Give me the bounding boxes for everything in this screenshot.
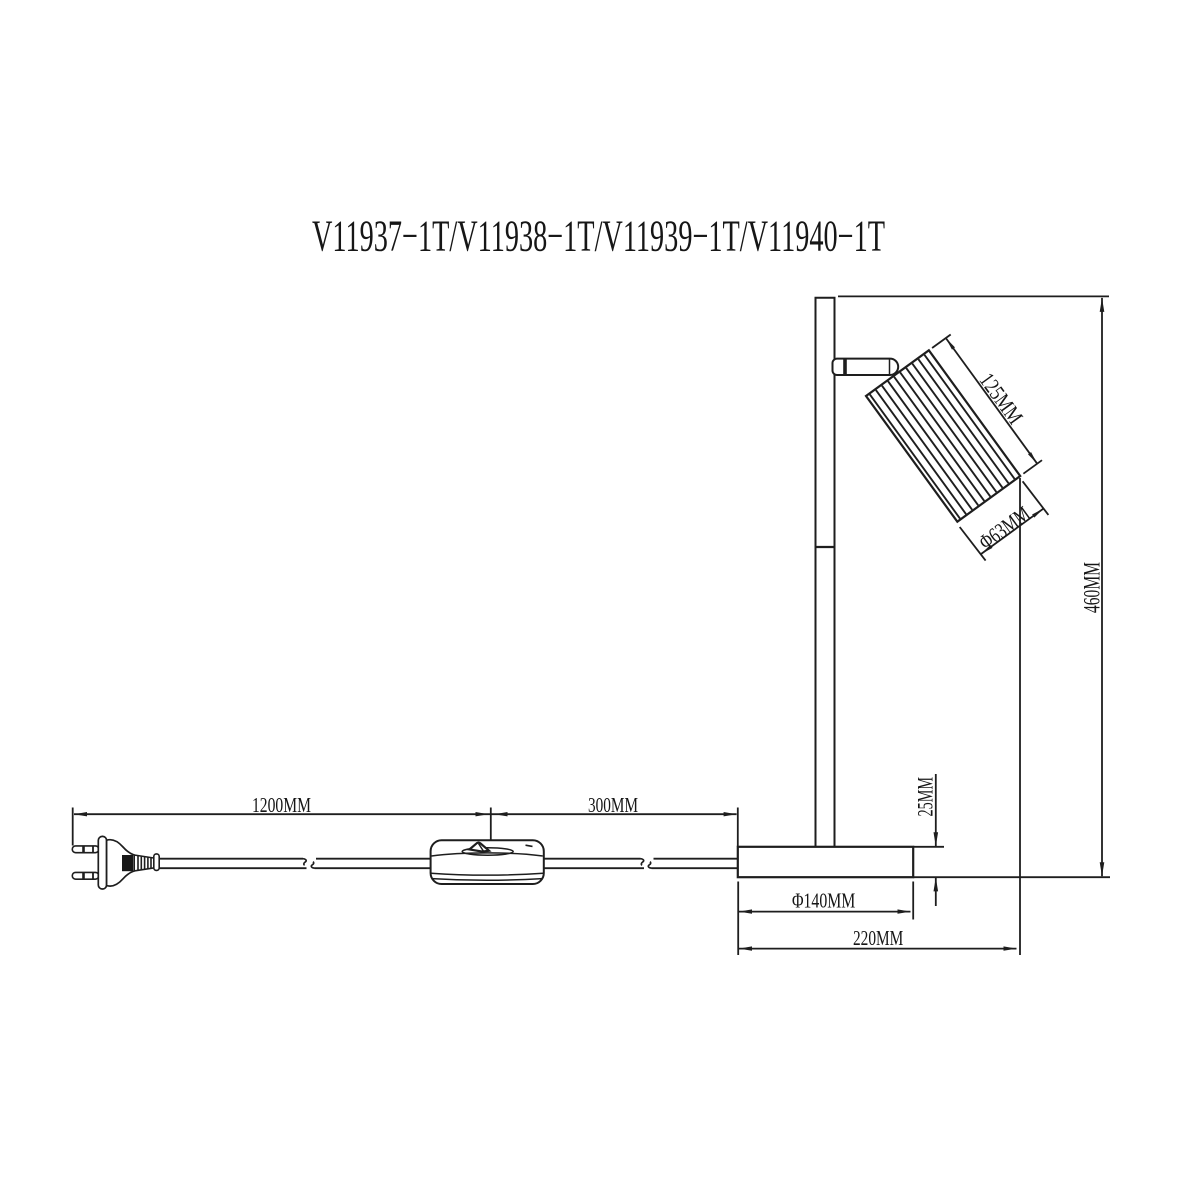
- svg-text:Φ140MM: Φ140MM: [792, 888, 855, 912]
- svg-text:V11937−1T/V11938−1T/V11939−1T/: V11937−1T/V11938−1T/V11939−1T/V11940−1T: [312, 212, 885, 261]
- svg-text:220MM: 220MM: [853, 926, 903, 950]
- svg-text:460MM: 460MM: [1080, 562, 1105, 613]
- svg-text:1200MM: 1200MM: [252, 793, 311, 817]
- svg-text:300MM: 300MM: [588, 793, 638, 817]
- svg-text:25MM: 25MM: [912, 777, 937, 817]
